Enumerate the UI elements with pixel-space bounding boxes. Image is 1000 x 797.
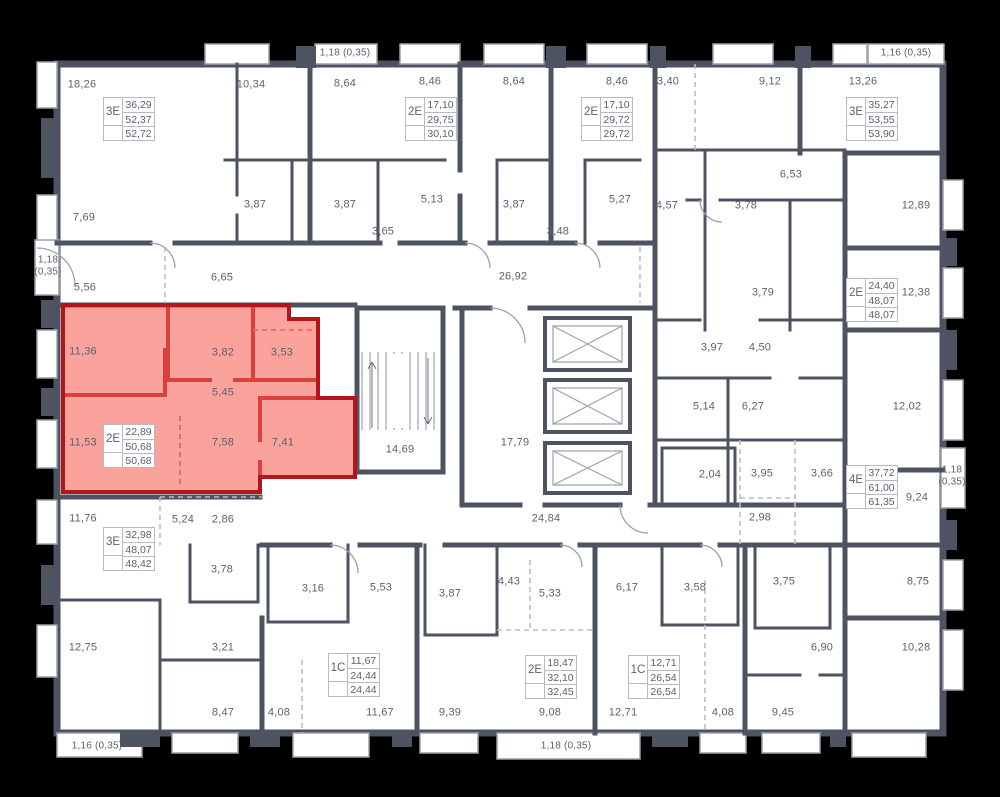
unit-type: 3E [104, 98, 123, 126]
room-area-label: 3,87 [244, 199, 266, 212]
unit-info-table[interactable]: 1C 12,71 26,54 26,54 [628, 655, 680, 699]
room-area-label: 3,95 [751, 468, 773, 481]
balcony-area-label: 1,18 (0,35) [541, 740, 592, 752]
unit-area-value: 30,10 [425, 126, 456, 140]
balcony-area-label: 1,16 (0,35) [72, 740, 123, 752]
room-area-label: 2,98 [749, 512, 771, 525]
room-area-label: 8,64 [334, 78, 356, 91]
unit-info-table[interactable]: 3E 36,29 52,37 52,72 [103, 97, 155, 141]
room-area-label: 11,36 [69, 346, 97, 359]
unit-area-value: 17,10 [425, 98, 456, 112]
balcony-area-label: 1,18 (0,35) [34, 255, 61, 278]
room-area-label: 4,08 [268, 707, 290, 720]
unit-info-table[interactable]: 1C 11,67 24,44 24,44 [328, 653, 380, 697]
unit-area-value: 29,72 [601, 112, 632, 126]
unit-area-value: 36,29 [123, 98, 154, 112]
unit-area-value: 32,10 [545, 670, 576, 684]
unit-type: 2E [582, 98, 601, 126]
unit-area-value: 61,35 [866, 494, 897, 508]
unit-info-table[interactable]: 3E 32,98 48,07 48,42 [103, 527, 155, 571]
room-area-label: 2,04 [699, 469, 721, 482]
room-area-label: 5,56 [74, 282, 96, 295]
room-area-label: 3,53 [271, 347, 293, 360]
room-area-label: 3,21 [212, 642, 234, 655]
room-area-label: 3,79 [752, 287, 774, 300]
unit-area-value: 24,44 [348, 682, 379, 696]
room-area-label: 8,46 [419, 76, 441, 89]
room-area-label: 12,38 [902, 287, 931, 300]
room-area-label: 14,69 [386, 444, 415, 457]
room-area-label: 5,33 [539, 588, 561, 601]
room-area-label: 3,66 [811, 468, 833, 481]
unit-area-value: 50,68 [123, 439, 154, 453]
unit-type: 2E [847, 279, 866, 307]
unit-area-value: 29,72 [601, 126, 632, 140]
room-area-label: 7,41 [272, 437, 294, 450]
unit-area-value: 61,00 [866, 480, 897, 494]
room-area-label: 5,13 [421, 194, 443, 207]
balcony-area-label: 1,18 (0,35) [320, 47, 371, 59]
unit-area-value: 52,37 [123, 112, 154, 126]
room-area-label: 6,53 [780, 169, 802, 182]
unit-area-value: 22,89 [123, 425, 154, 439]
unit-type: 2E [406, 98, 425, 126]
unit-type: 2E [104, 425, 123, 453]
unit-area-value: 26,54 [648, 670, 679, 684]
room-area-label: 12,75 [69, 642, 98, 655]
room-area-label: 11,53 [69, 437, 97, 450]
unit-type: 1C [329, 654, 348, 682]
unit-type: 2E [526, 656, 545, 684]
unit-type: 3E [847, 98, 866, 126]
unit-area-value: 29,75 [425, 112, 456, 126]
unit-info-table[interactable]: 2E 17,10 29,72 29,72 [581, 97, 633, 141]
room-area-label: 9,08 [539, 707, 561, 720]
room-area-label: 12,71 [609, 707, 638, 720]
room-area-label: 6,65 [211, 272, 233, 285]
room-area-label: 3,87 [334, 199, 356, 212]
room-area-label: 8,75 [907, 576, 929, 589]
unit-area-value: 24,44 [348, 668, 379, 682]
room-area-label: 9,39 [439, 707, 461, 720]
unit-area-value: 53,90 [866, 126, 897, 140]
room-area-label: 5,14 [693, 401, 715, 414]
unit-info-table[interactable]: 3E 35,27 53,55 53,90 [846, 97, 898, 141]
room-area-label: 9,45 [772, 707, 794, 720]
unit-info-table[interactable]: 2E 24,40 48,07 48,07 [846, 278, 898, 322]
room-area-label: 3,58 [684, 582, 706, 595]
unit-area-value: 32,98 [123, 528, 154, 542]
room-area-label: 6,27 [742, 401, 764, 414]
unit-area-value: 12,71 [648, 656, 679, 670]
unit-area-value: 52,72 [123, 126, 154, 140]
room-area-label: 3,87 [503, 199, 525, 212]
room-area-label: 8,64 [503, 76, 525, 89]
room-area-label: 3,78 [735, 200, 757, 213]
room-area-label: 3,97 [701, 342, 723, 355]
room-area-label: 4,08 [712, 707, 734, 720]
unit-area-value: 32,45 [545, 684, 576, 698]
room-area-label: 3,78 [211, 564, 233, 577]
room-area-label: 3,40 [657, 76, 679, 89]
room-area-label: 4,57 [656, 200, 678, 213]
room-area-label: 4,50 [749, 342, 771, 355]
room-area-label: 18,26 [68, 79, 97, 92]
elevator-icon [545, 318, 630, 493]
unit-area-value: 48,07 [866, 293, 897, 307]
room-area-label: 12,02 [893, 401, 922, 414]
room-area-label: 7,58 [212, 437, 234, 450]
unit-area-value: 24,40 [866, 279, 897, 293]
room-area-label: 7,69 [73, 212, 95, 225]
room-area-label: 3,87 [439, 588, 461, 601]
room-area-label: 8,47 [212, 707, 234, 720]
unit-area-value: 48,42 [123, 556, 154, 570]
unit-info-table-highlighted[interactable]: 2E 22,89 50,68 50,68 [103, 424, 155, 468]
unit-area-value: 17,10 [601, 98, 632, 112]
room-area-label: 9,12 [759, 76, 781, 89]
unit-info-table[interactable]: 2E 17,10 29,75 30,10 [405, 97, 457, 141]
room-area-label: 3,48 [547, 226, 569, 239]
room-area-label: 3,65 [372, 226, 394, 239]
room-area-label: 12,89 [902, 200, 931, 213]
room-area-label: 17,79 [501, 437, 530, 450]
floor-plan: 18,26 10,34 8,64 8,46 8,64 8,46 3,40 9,1… [0, 0, 1000, 797]
unit-area-value: 35,27 [866, 98, 897, 112]
room-area-label: 9,24 [906, 492, 928, 505]
unit-area-value: 18,47 [545, 656, 576, 670]
room-area-label: 10,28 [902, 642, 931, 655]
unit-info-table[interactable]: 4E 37,72 61,00 61,35 [846, 465, 898, 509]
room-area-label: 5,45 [212, 387, 234, 400]
unit-area-value: 48,07 [123, 542, 154, 556]
unit-area-value: 37,72 [866, 466, 897, 480]
unit-area-value: 11,67 [348, 654, 379, 668]
room-area-label: 24,84 [532, 513, 561, 526]
room-area-label: 3,75 [773, 576, 795, 589]
room-area-label: 3,16 [302, 583, 324, 596]
room-area-label: 8,46 [606, 76, 628, 89]
room-area-label: 11,67 [366, 707, 394, 720]
unit-area-value: 26,54 [648, 684, 679, 698]
unit-area-value: 50,68 [123, 453, 154, 467]
balcony-area-label: 1,18 (0,35) [938, 465, 965, 488]
unit-info-table[interactable]: 2E 18,47 32,10 32,45 [525, 655, 577, 699]
room-area-label: 13,26 [849, 76, 878, 89]
room-area-label: 26,92 [499, 271, 528, 284]
room-area-label: 6,17 [616, 582, 638, 595]
unit-area-value: 48,07 [866, 307, 897, 321]
room-area-label: 4,43 [498, 576, 520, 589]
room-area-label: 10,34 [237, 79, 266, 92]
room-area-label: 6,90 [811, 642, 833, 655]
unit-type: 4E [847, 466, 866, 494]
room-area-label: 11,76 [69, 513, 97, 526]
room-area-label: 5,24 [172, 514, 194, 527]
unit-type: 3E [104, 528, 123, 556]
room-area-label: 5,27 [609, 194, 631, 207]
unit-type: 1C [629, 656, 648, 684]
unit-area-value: 53,55 [866, 112, 897, 126]
balcony-area-label: 1,16 (0,35) [881, 47, 932, 59]
room-area-label: 2,86 [212, 514, 234, 527]
room-area-label: 5,53 [370, 582, 392, 595]
room-area-label: 3,82 [212, 347, 234, 360]
